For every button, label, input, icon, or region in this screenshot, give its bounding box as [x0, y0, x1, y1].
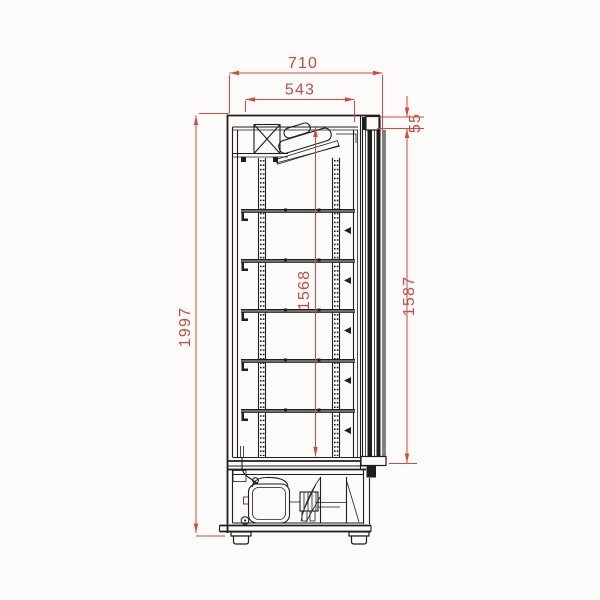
- dim-label-door-height: 1587: [401, 276, 418, 316]
- door-top-hinge: [366, 117, 379, 131]
- dimension-inner-height: 1568: [296, 128, 318, 457]
- dim-label-inner-height: 1568: [296, 270, 313, 310]
- glass-door: [361, 117, 386, 478]
- foot: [349, 532, 369, 544]
- dim-label-inner-depth: 543: [285, 82, 315, 99]
- dim-label-top-frame: 55: [407, 113, 424, 133]
- dim-label-overall-height: 1997: [177, 307, 194, 347]
- dimension-door-height: 1587: [389, 129, 418, 464]
- foot: [231, 532, 251, 544]
- compressor: [241, 477, 289, 524]
- dim-label-overall-depth: 710: [288, 55, 318, 72]
- door-bottom-rail: [361, 457, 386, 466]
- dimension-top-frame: 55: [377, 96, 424, 133]
- dimension-overall-height: 1997: [177, 114, 229, 537]
- door-bottom-hinge: [367, 466, 377, 478]
- evaporator-unit: [233, 115, 356, 164]
- condenser-fan: [290, 477, 347, 523]
- feet: [231, 532, 369, 544]
- technical-drawing: 710 543 1997 1568 55 1587: [0, 0, 600, 600]
- compressor-compartment: [220, 446, 372, 532]
- cabinet-body: [228, 116, 381, 534]
